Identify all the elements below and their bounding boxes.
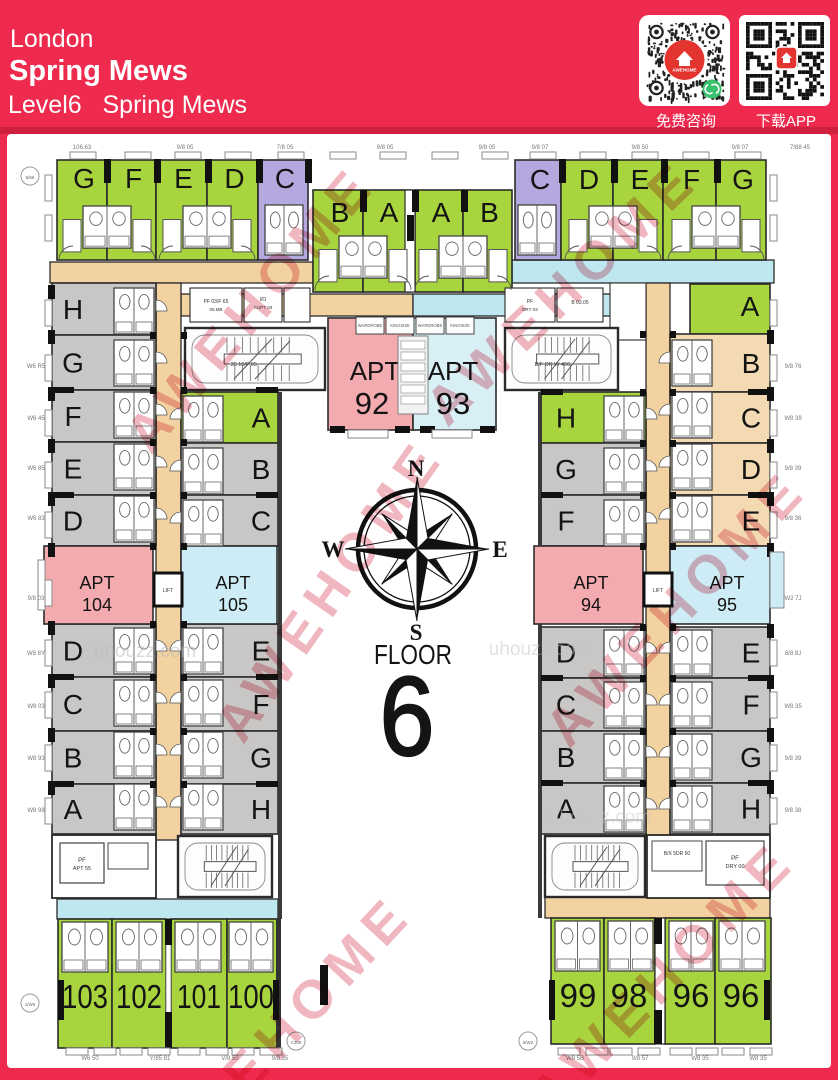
svg-text:9/8 05: 9/8 05 (177, 145, 194, 151)
svg-text:B/F DR W 456: B/F DR W 456 (535, 362, 570, 368)
svg-text:WARDROBE: WARDROBE (418, 323, 443, 328)
svg-text:9/8 50: 9/8 50 (632, 145, 649, 151)
svg-text:9/8 76: 9/8 76 (785, 364, 802, 370)
svg-text:H: H (251, 794, 271, 825)
svg-text:APT: APT (573, 573, 608, 593)
svg-text:C: C (63, 689, 83, 720)
svg-text:W8 93: W8 93 (27, 756, 45, 762)
svg-text:London: London (10, 25, 93, 53)
svg-text:A: A (252, 403, 271, 434)
svg-text:G: G (73, 163, 95, 194)
svg-text:W8 39: W8 39 (784, 416, 802, 422)
svg-text:APT: APT (350, 356, 401, 386)
svg-text:E: E (174, 163, 193, 194)
svg-text:C: C (251, 506, 271, 537)
svg-text:W8 35: W8 35 (691, 1056, 709, 1062)
svg-text:W8 03: W8 03 (27, 704, 45, 710)
svg-text:C: C (275, 163, 295, 194)
svg-text:G: G (732, 164, 754, 195)
svg-text:9/8 05: 9/8 05 (377, 145, 394, 151)
svg-text:W8 8Y: W8 8Y (27, 651, 45, 657)
svg-text:D: D (63, 636, 83, 667)
svg-text:A: A (380, 197, 399, 228)
svg-text:KINGSIZE: KINGSIZE (450, 323, 470, 328)
svg-text:免费咨询: 免费咨询 (656, 113, 716, 130)
svg-text:E: E (742, 638, 761, 669)
svg-text:AWEHOME: AWEHOME (672, 68, 696, 73)
svg-text:101: 101 (177, 978, 221, 1015)
svg-text:H: H (741, 794, 761, 825)
svg-text:106.63: 106.63 (73, 145, 92, 151)
svg-text:1/W6: 1/W6 (25, 1002, 36, 1007)
svg-text:C: C (741, 403, 761, 434)
svg-text:103: 103 (62, 978, 108, 1015)
svg-text:D: D (579, 164, 599, 195)
svg-text:W6 83: W6 83 (27, 516, 45, 522)
svg-text:Level6 Spring Mews: Level6 Spring Mews (8, 91, 247, 119)
svg-text:E: E (64, 454, 83, 485)
svg-text:Spring Mews: Spring Mews (9, 55, 188, 87)
svg-text:W8 98: W8 98 (27, 808, 45, 814)
svg-text:7/88 45: 7/88 45 (790, 145, 811, 151)
svg-text:W6 R5: W6 R5 (27, 364, 46, 370)
svg-text:6: 6 (380, 655, 435, 779)
svg-text:D: D (224, 163, 244, 194)
svg-text:F: F (64, 401, 81, 432)
svg-text:C: C (530, 164, 550, 195)
svg-text:A: A (741, 291, 760, 322)
svg-text:F: F (557, 506, 574, 537)
svg-text:D: D (63, 506, 83, 537)
svg-text:uhouzz.com: uhouzz.com (489, 639, 591, 660)
svg-text:A: A (64, 794, 83, 825)
svg-text:PF: PF (78, 858, 86, 864)
svg-text:uhouzz.com: uhouzz.com (94, 641, 196, 662)
svg-text:B: B (480, 197, 499, 228)
svg-text:F: F (125, 163, 142, 194)
svg-text:E: E (492, 537, 507, 562)
svg-text:92: 92 (355, 386, 389, 421)
svg-text:WARDROBE: WARDROBE (358, 323, 383, 328)
svg-text:94: 94 (581, 595, 601, 615)
svg-text:uhouzz.com: uhouzz.com (549, 807, 651, 828)
svg-text:W2 7J: W2 7J (784, 596, 801, 602)
svg-text:102: 102 (116, 978, 162, 1015)
svg-text:5/W2: 5/W2 (523, 1040, 534, 1045)
svg-text:B: B (64, 743, 83, 774)
svg-text:F: F (742, 690, 759, 721)
svg-text:9/8 07: 9/8 07 (532, 145, 549, 151)
svg-text:W8 35: W8 35 (784, 704, 802, 710)
svg-text:W6 85: W6 85 (27, 466, 45, 472)
svg-text:Y/85 81: Y/85 81 (150, 1056, 171, 1062)
svg-text:W6 50: W6 50 (81, 1056, 99, 1062)
svg-text:KINGSIZE: KINGSIZE (390, 323, 410, 328)
svg-text:H: H (556, 403, 576, 434)
svg-text:APT 55: APT 55 (73, 866, 91, 872)
svg-text:8/8 8J: 8/8 8J (785, 651, 801, 657)
svg-text:105: 105 (218, 595, 248, 615)
svg-text:9/8 38: 9/8 38 (785, 808, 802, 814)
svg-text:APT: APT (79, 573, 114, 593)
svg-text:下载APP: 下载APP (756, 113, 816, 130)
svg-text:W6 45: W6 45 (27, 416, 45, 422)
svg-text:96: 96 (723, 977, 760, 1014)
svg-text:7/8 05: 7/8 05 (277, 145, 294, 151)
svg-text:9/8 57: 9/8 57 (632, 1056, 649, 1062)
svg-text:H: H (63, 294, 83, 325)
svg-text:9/8 05: 9/8 05 (479, 145, 496, 151)
svg-text:G: G (740, 742, 762, 773)
svg-text:APT: APT (215, 573, 250, 593)
svg-text:B/X 5DR 50: B/X 5DR 50 (664, 851, 691, 857)
svg-text:5/56: 5/56 (26, 175, 35, 180)
svg-text:G: G (62, 348, 84, 379)
svg-text:W8 35: W8 35 (749, 1056, 767, 1062)
svg-text:G: G (555, 454, 577, 485)
svg-text:A: A (432, 197, 451, 228)
svg-text:9/8 03: 9/8 03 (28, 596, 45, 602)
svg-text:104: 104 (82, 595, 112, 615)
svg-text:9/8 07: 9/8 07 (732, 145, 749, 151)
svg-text:B: B (742, 348, 761, 379)
svg-text:B: B (252, 454, 271, 485)
svg-text:LIFT: LIFT (163, 588, 173, 594)
svg-text:9/8 39: 9/8 39 (785, 756, 802, 762)
